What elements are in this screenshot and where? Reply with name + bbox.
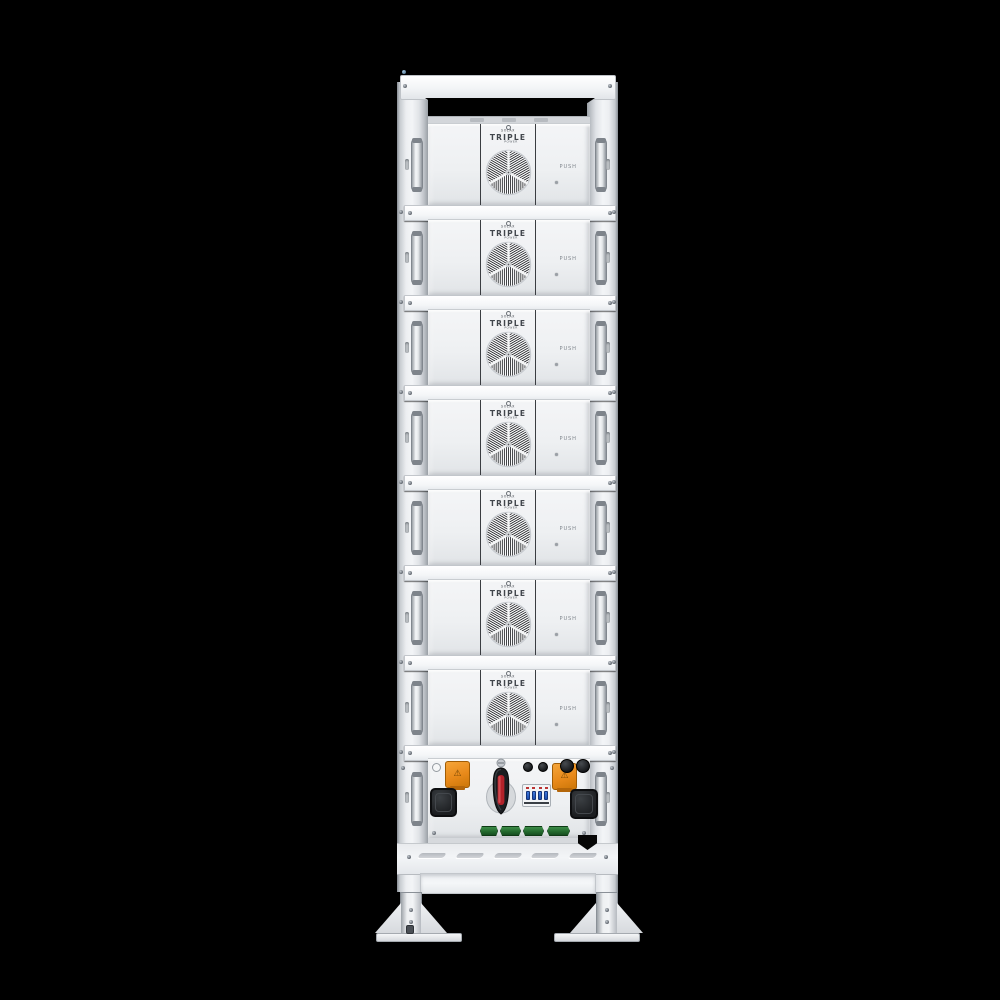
battery-module-5: SOLAX TRIPLE POWER PUSH [397,489,618,579]
battery-module-4: SOLAX TRIPLE POWER PUSH [397,399,618,489]
vent-slot [568,853,598,858]
breaker-toggle[interactable] [526,791,530,800]
brand-logo: SOLAX TRIPLE POWER [488,220,528,241]
post-slot [405,612,409,623]
screw-icon [399,210,403,214]
module-handle-left[interactable] [411,501,423,555]
module-panel-center: SOLAX TRIPLE POWER [480,310,536,386]
rubber-port-right[interactable] [570,789,598,819]
screw-icon [401,766,405,770]
logo-small-text: SOLAX [497,130,519,132]
module-panel-left [428,580,480,656]
module-panel-left [428,310,480,386]
screw-icon [407,855,411,859]
module-panel-center: SOLAX TRIPLE POWER [480,580,536,656]
comm-port[interactable] [500,826,521,836]
module-face: SOLAX TRIPLE POWER PUSH [428,219,590,297]
logo-small-text: SOLAX [497,316,519,318]
module-handle-left[interactable] [411,681,423,735]
screw-icon [605,920,609,924]
post-slot [606,159,610,170]
module-face: SOLAX TRIPLE POWER PUSH [428,669,590,747]
status-indicator [432,763,441,772]
screw-icon [408,571,412,575]
push-button[interactable] [555,273,558,276]
module-panel-center: SOLAX TRIPLE POWER [480,400,536,476]
control-module: ⚠ ⚠ [397,758,618,838]
module-panel-center: SOLAX TRIPLE POWER [480,220,536,296]
post-slot [405,159,409,170]
screw-icon [408,391,412,395]
module-face: SOLAX TRIPLE POWER PUSH [428,489,590,567]
control-panel-face: ⚠ ⚠ [428,758,590,840]
screw-icon [612,750,616,754]
module-handle-left[interactable] [411,591,423,645]
module-panel-center: SOLAX TRIPLE POWER [480,670,536,746]
screw-icon [399,390,403,394]
post-slot [405,792,409,803]
screw-icon [612,300,616,304]
module-panel-left [428,124,480,206]
screw-icon [399,570,403,574]
screw-icon [605,908,609,912]
screw-icon [612,480,616,484]
foot-gusset [570,903,596,933]
module-handle-left[interactable] [411,138,423,192]
brand-logo: SOLAX TRIPLE POWER [488,580,528,601]
terminal-cap-small [538,762,548,772]
push-label: PUSH [560,256,577,262]
top-crossbar [400,75,616,100]
screw-icon [582,831,586,835]
screw-icon [402,70,406,74]
post-slot [405,522,409,533]
module-handle-left[interactable] [411,321,423,375]
lower-crossbar [420,873,596,894]
screw-icon [408,301,412,305]
screw-icon [408,481,412,485]
fan-vent-icon [485,601,532,648]
push-label: PUSH [560,346,577,352]
push-label: PUSH [560,436,577,442]
vent-slot [493,853,523,858]
module-panel-left [428,490,480,566]
logo-small-text: SOLAX [497,586,519,588]
screw-icon [604,855,608,859]
post-slot [606,792,610,803]
battery-module-7: SOLAX TRIPLE POWER PUSH [397,669,618,759]
foot-baseplate-left [376,933,462,942]
post-slot [405,252,409,263]
post-slot [405,702,409,713]
push-button[interactable] [555,453,558,456]
push-button[interactable] [555,363,558,366]
screw-icon [432,831,436,835]
post-slot [606,252,610,263]
foot-gusset [421,903,447,933]
brand-logo: SOLAX TRIPLE POWER [488,124,528,145]
breaker-toggle[interactable] [532,791,536,800]
breaker-toggle[interactable] [538,791,542,800]
battery-module-2: SOLAX TRIPLE POWER PUSH [397,219,618,309]
screw-icon [399,660,403,664]
comm-port[interactable] [547,826,570,836]
bracket-tab [534,118,548,122]
post-slot [606,522,610,533]
fan-vent-icon [485,149,532,196]
brand-logo: SOLAX TRIPLE POWER [488,310,528,331]
fan-vent-icon [485,331,532,378]
module-panel-center: SOLAX TRIPLE POWER [480,490,536,566]
module-face: SOLAX TRIPLE POWER PUSH [428,123,590,207]
fan-vent-icon [485,511,532,558]
screw-icon [409,908,413,912]
circuit-breaker[interactable] [522,784,551,807]
fan-vent-icon [485,421,532,468]
breaker-toggle[interactable] [544,791,548,800]
logo-small-text: SOLAX [497,226,519,228]
screw-icon [612,210,616,214]
module-panel-right: PUSH [535,670,590,746]
post-slot [606,702,610,713]
post-slot [405,342,409,353]
breaker-window [545,787,548,789]
push-label: PUSH [560,706,577,712]
post-slot [606,342,610,353]
module-face: SOLAX TRIPLE POWER PUSH [428,309,590,387]
screw-icon [399,300,403,304]
bracket-tab [470,118,484,122]
logo-sub-text: POWER [501,597,521,599]
rubber-port-left[interactable] [430,788,457,817]
battery-module-6: SOLAX TRIPLE POWER PUSH [397,579,618,669]
logo-sub-text: POWER [501,417,521,419]
screw-icon [409,920,413,924]
screw-icon [408,211,412,215]
post-slot [606,432,610,443]
module-handle-left[interactable] [411,231,423,285]
bracket-tab [502,118,516,122]
screw-icon [408,661,412,665]
comm-port[interactable] [523,826,544,836]
screw-icon [612,390,616,394]
module-panel-right: PUSH [535,400,590,476]
main-switch[interactable] [484,757,518,825]
push-button[interactable] [555,633,558,636]
module-panel-right: PUSH [535,124,590,206]
push-label: PUSH [560,616,577,622]
module-panel-right: PUSH [535,310,590,386]
screw-icon [403,84,407,88]
breaker-window [539,787,542,789]
screw-icon [612,570,616,574]
foot-gusset [617,903,643,933]
screw-icon [399,480,403,484]
scene: SOLAX TRIPLE POWER PUSH [0,0,1000,1000]
logo-sub-text: POWER [501,327,521,329]
module-panel-left [428,400,480,476]
screw-icon [608,84,612,88]
module-face: SOLAX TRIPLE POWER PUSH [428,579,590,657]
logo-small-text: SOLAX [497,676,519,678]
push-button[interactable] [555,181,558,184]
foot-post-right [596,892,618,935]
breaker-window [532,787,535,789]
terminal-cap-large [576,759,590,773]
breaker-bar [524,802,549,804]
screw-icon [399,750,403,754]
logo-small-text: SOLAX [497,496,519,498]
brand-logo: SOLAX TRIPLE POWER [488,490,528,511]
logo-sub-text: POWER [501,237,521,239]
module-panel-right: PUSH [535,490,590,566]
logo-sub-text: POWER [501,687,521,689]
screw-icon [610,766,614,770]
vent-slot [455,853,485,858]
screw-icon [612,660,616,664]
module-panel-right: PUSH [535,220,590,296]
breaker-window [526,787,529,789]
push-label: PUSH [560,526,577,532]
module-face: SOLAX TRIPLE POWER PUSH [428,399,590,477]
power-connector-left[interactable]: ⚠ [445,761,470,788]
rack-top-opening [425,98,595,118]
push-button[interactable] [555,543,558,546]
vent-slot [417,853,447,858]
brand-logo: SOLAX TRIPLE POWER [488,670,528,691]
module-handle-left[interactable] [411,411,423,465]
post-slot [606,612,610,623]
logo-sub-text: POWER [501,507,521,509]
push-label: PUSH [560,164,577,170]
brand-logo: SOLAX TRIPLE POWER [488,400,528,421]
fan-vent-icon [485,241,532,288]
battery-module-3: SOLAX TRIPLE POWER PUSH [397,309,618,399]
module-handle-left[interactable] [411,772,423,826]
foot-gusset [375,903,401,933]
foot-knob [406,925,414,934]
logo-sub-text: POWER [501,141,521,143]
terminal-cap-large [560,759,574,773]
logo-small-text: SOLAX [497,406,519,408]
push-button[interactable] [555,723,558,726]
foot-baseplate-right [554,933,640,942]
module-panel-right: PUSH [535,580,590,656]
vent-slot [530,853,560,858]
fan-vent-icon [485,691,532,738]
terminal-cap-small [523,762,533,772]
module-panel-center: SOLAX TRIPLE POWER [480,124,536,206]
battery-module-1: SOLAX TRIPLE POWER PUSH [397,123,618,219]
module-panel-left [428,670,480,746]
screw-icon [408,751,412,755]
comm-port[interactable] [480,826,498,836]
post-slot [405,432,409,443]
module-panel-left [428,220,480,296]
